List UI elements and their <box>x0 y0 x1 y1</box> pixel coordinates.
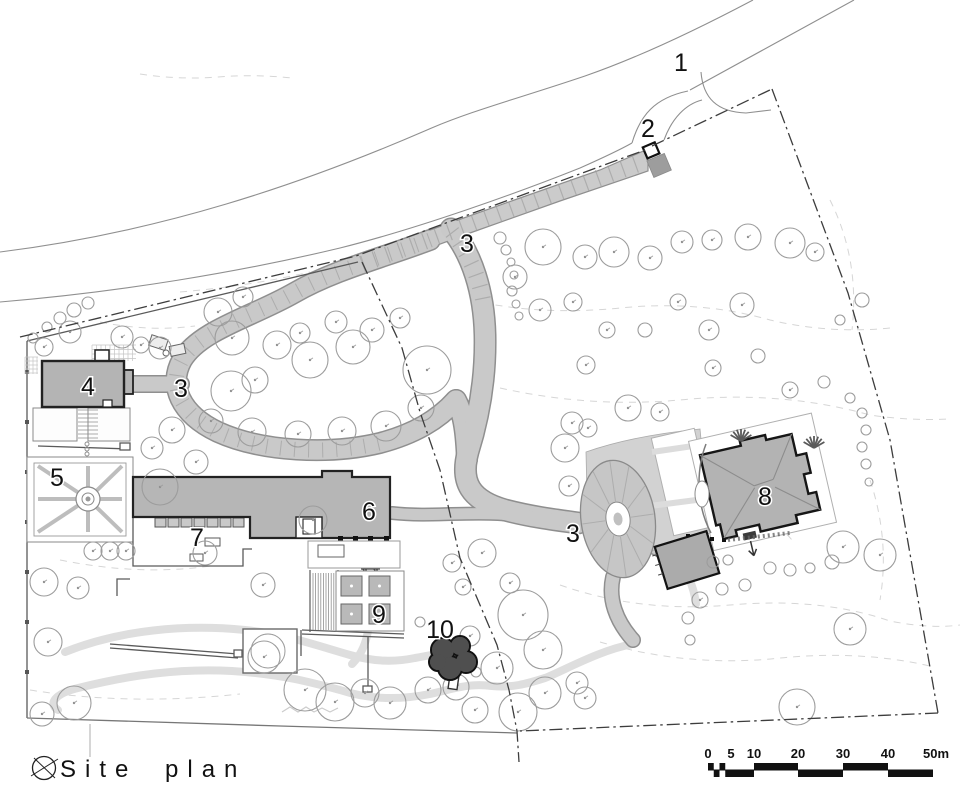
stream-squiggle <box>282 707 338 712</box>
label-entrance-gate: 2 <box>641 115 655 143</box>
axis-beads <box>85 442 89 456</box>
scale-tick-0: 0 <box>704 746 711 761</box>
title-block: Site plan <box>31 724 246 783</box>
label-terrace-7: 7 <box>190 524 204 552</box>
axis-bead <box>85 452 89 456</box>
planter-box <box>220 518 231 527</box>
label-driveway-court: 3 <box>566 520 580 548</box>
step-treads <box>313 573 334 630</box>
north-symbol-icon <box>31 757 58 780</box>
tree-symbol <box>855 293 869 307</box>
scale-bar: 0 5 10 20 30 40 50m <box>704 746 949 777</box>
scale-tick-30: 30 <box>836 746 850 761</box>
tree-symbol <box>494 232 506 244</box>
garden-equipment <box>149 335 186 357</box>
road-group <box>0 0 854 302</box>
tree-symbol <box>857 442 867 452</box>
tree-symbol <box>510 271 518 279</box>
south-fence <box>27 718 517 733</box>
fence-post <box>25 570 29 574</box>
scale-bar-block <box>798 770 843 777</box>
tree-symbol <box>82 297 94 309</box>
entrance-curb-east <box>664 100 702 140</box>
scale-tick-20: 20 <box>791 746 805 761</box>
scale-bar-block <box>714 770 720 777</box>
planter-box <box>233 518 244 527</box>
tree-symbol <box>501 245 511 255</box>
scale-bar-block <box>720 763 726 770</box>
tree-symbol <box>845 393 855 403</box>
tree-symbol <box>739 579 751 591</box>
scale-bar-block <box>708 763 714 770</box>
tree-symbol <box>67 303 81 317</box>
label-garden-5: 5 <box>50 464 64 492</box>
tree-symbol <box>515 312 523 320</box>
tree-symbol <box>861 459 871 469</box>
scale-tick-50m: 50m <box>923 746 949 761</box>
tree-symbol <box>861 425 871 435</box>
fence-post <box>25 370 29 374</box>
zigzag-wall <box>117 579 130 596</box>
fence-post <box>25 420 29 424</box>
scale-bar-block <box>888 770 933 777</box>
boundary-east <box>772 89 938 713</box>
label-house-8: 8 <box>758 483 772 511</box>
scale-tick-5: 5 <box>727 746 734 761</box>
boundary-south <box>520 713 938 731</box>
label-driveway-upper: 3 <box>460 230 474 258</box>
north-fence <box>27 262 358 341</box>
tree-symbol <box>835 315 845 325</box>
axis-bead <box>85 442 89 446</box>
tree-symbol <box>723 555 733 565</box>
scale-bar-block <box>843 763 888 770</box>
courtyard-wall <box>38 446 130 449</box>
label-road: 1 <box>674 49 688 77</box>
tree-symbol <box>638 323 652 337</box>
planter-box <box>207 518 218 527</box>
page-title: Site plan <box>60 756 246 783</box>
tree-symbol <box>818 376 830 388</box>
tree-symbol <box>512 300 520 308</box>
boundary-northeast <box>652 89 772 146</box>
scale-bar-ticks: 0 5 10 20 30 40 50m <box>704 746 949 761</box>
site-plan-drawing: 1 2 3 3 3 4 5 6 7 8 9 10 Site plan 0 5 1… <box>0 0 960 788</box>
parterre-garden <box>27 457 133 542</box>
tree-symbol <box>682 612 694 624</box>
planter-box <box>155 518 166 527</box>
label-tree-10: 10 <box>426 616 454 644</box>
tree-symbol <box>764 562 776 574</box>
road-near-edge-east <box>690 0 854 90</box>
scale-bar-block <box>754 763 798 770</box>
scale-tick-40: 40 <box>881 746 895 761</box>
bed-center-dot <box>378 585 381 588</box>
label-building-6: 6 <box>362 498 376 526</box>
tree-symbol <box>805 563 815 573</box>
tree-symbol <box>784 564 796 576</box>
scale-tick-10: 10 <box>747 746 761 761</box>
bed-center-dot <box>350 585 353 588</box>
tree-symbol <box>865 478 873 486</box>
road-far-edge <box>0 0 753 252</box>
garden-9 <box>336 571 404 631</box>
tree-symbol <box>716 583 728 595</box>
label-garden-9: 9 <box>372 601 386 629</box>
bed-center-dot <box>350 613 353 616</box>
label-building-4: 4 <box>81 373 95 401</box>
fence-post <box>25 670 29 674</box>
tree-symbol <box>751 349 765 363</box>
planter-box <box>168 518 179 527</box>
long-wall <box>110 644 238 658</box>
site-plan-page: 1 2 3 3 3 4 5 6 7 8 9 10 Site plan 0 5 1… <box>0 0 960 788</box>
feature-tree-10 <box>429 636 477 690</box>
fence-post <box>25 620 29 624</box>
tree-symbol <box>415 617 425 627</box>
tree-symbol <box>685 635 695 645</box>
scale-bar-block <box>731 770 754 777</box>
scale-bar-block <box>725 770 731 777</box>
label-driveway-hairpin: 3 <box>174 375 188 403</box>
wall-end-block <box>234 650 242 657</box>
